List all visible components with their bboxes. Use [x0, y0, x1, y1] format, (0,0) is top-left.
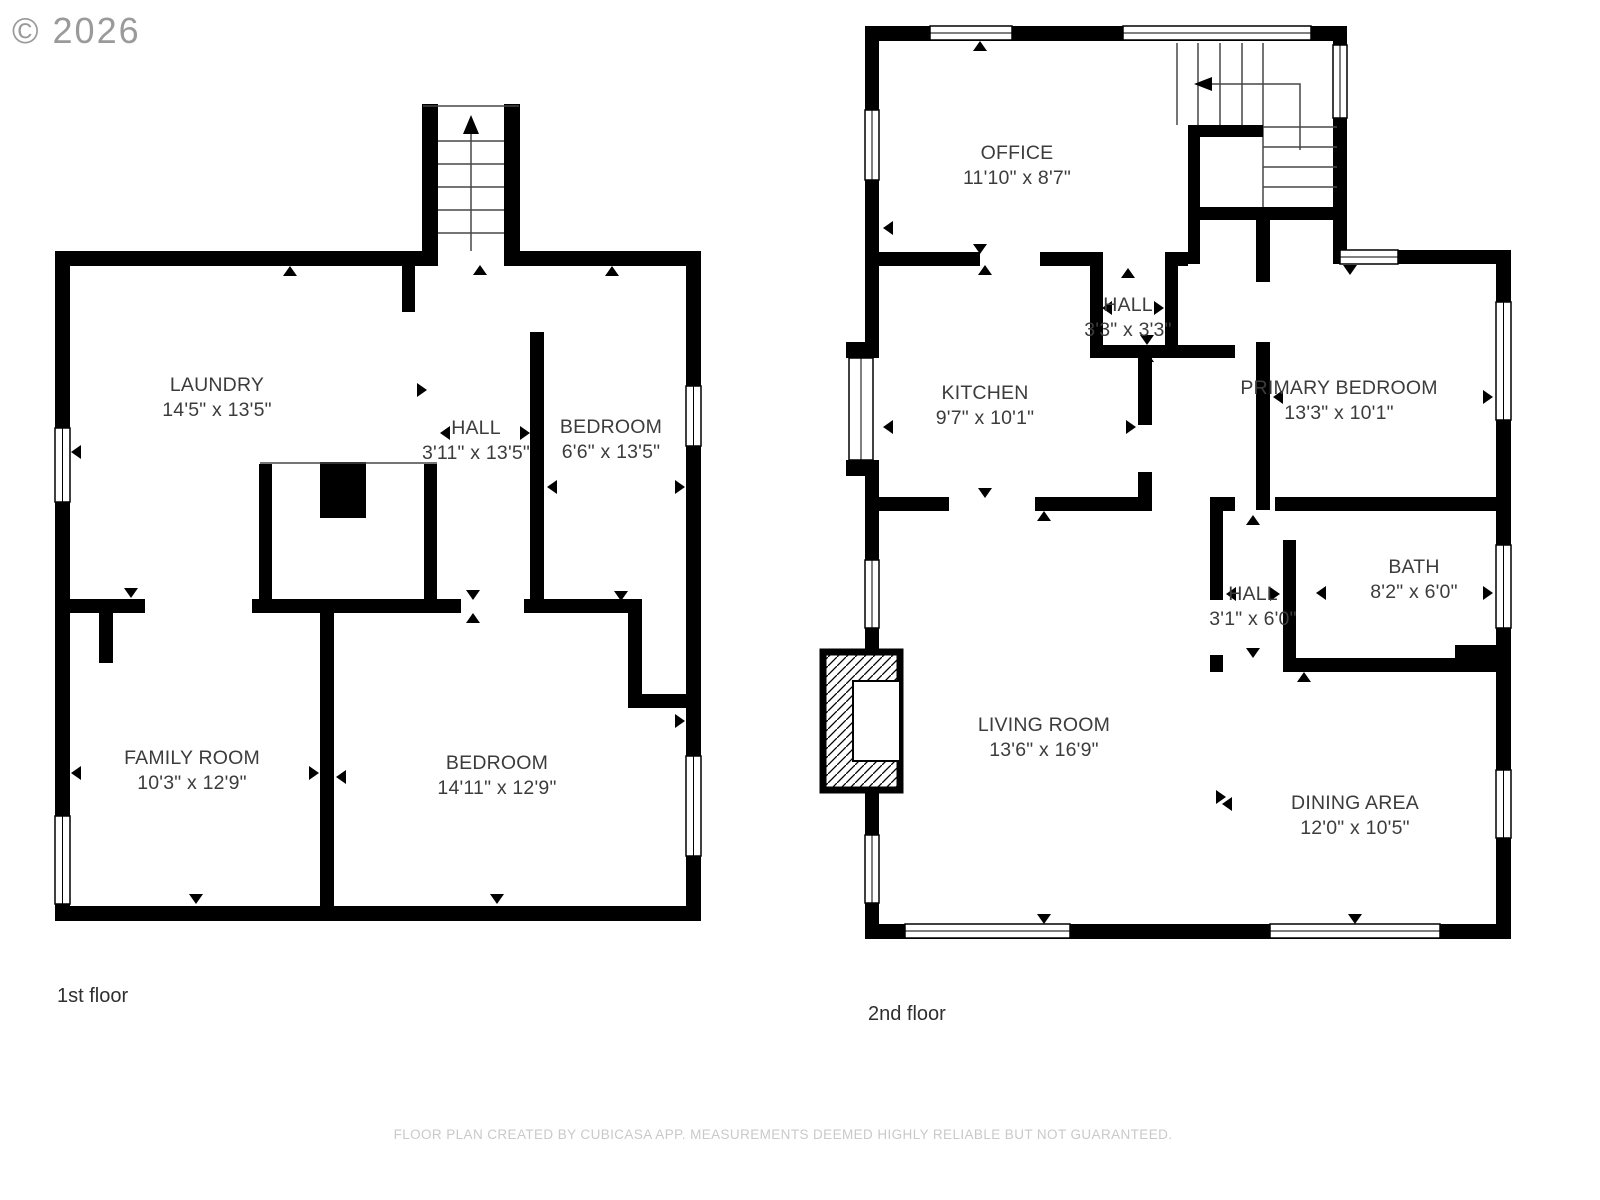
first-floor-arrows: [71, 265, 685, 904]
room-label-dining-area: DINING AREA 12'0" x 10'5": [1291, 791, 1419, 841]
room-dims: 3'11" x 13'5": [422, 441, 530, 466]
room-label-living-room: LIVING ROOM 13'6" x 16'9": [978, 713, 1110, 763]
second-floor-caption: 2nd floor: [868, 1003, 946, 1026]
first-floor-exterior-walls: [55, 251, 701, 921]
room-name: PRIMARY BEDROOM: [1240, 376, 1437, 401]
room-label-hall-2nd: HALL 3'1" x 6'0": [1209, 582, 1296, 632]
first-floor-interior-walls: [55, 266, 701, 921]
room-dims: 9'7" x 10'1": [936, 406, 1035, 431]
copyright-watermark: © 2026: [12, 10, 141, 52]
room-label-bedroom-upper: BEDROOM 6'6" x 13'5": [560, 415, 662, 465]
room-dims: 8'2" x 6'0": [1370, 580, 1457, 605]
room-name: KITCHEN: [936, 381, 1035, 406]
room-dims: 6'6" x 13'5": [560, 440, 662, 465]
room-dims: 3'1" x 6'0": [1209, 607, 1296, 632]
room-label-bath: BATH 8'2" x 6'0": [1370, 555, 1457, 605]
room-label-office: OFFICE 11'10" x 8'7": [963, 141, 1071, 191]
room-name: OFFICE: [963, 141, 1071, 166]
room-name: BEDROOM: [560, 415, 662, 440]
room-name: DINING AREA: [1291, 791, 1419, 816]
room-label-hall-small: HALL 3'3" x 3'3": [1084, 293, 1171, 343]
stairs-up-arrow: [463, 115, 479, 134]
first-floor-plan: [55, 104, 701, 921]
first-floor-stairs: [422, 104, 520, 266]
room-dims: 14'5" x 13'5": [162, 398, 272, 423]
room-label-family-room: FAMILY ROOM 10'3" x 12'9": [124, 746, 260, 796]
room-dims: 12'0" x 10'5": [1291, 816, 1419, 841]
room-dims: 3'3" x 3'3": [1084, 318, 1171, 343]
footer-disclaimer: FLOOR PLAN CREATED BY CUBICASA APP. MEAS…: [394, 1127, 1173, 1142]
room-name: LAUNDRY: [162, 373, 272, 398]
kitchen-bay-window: [846, 342, 879, 476]
room-name: HALL: [1084, 293, 1171, 318]
room-dims: 10'3" x 12'9": [124, 771, 260, 796]
room-label-hall-1st: HALL 3'11" x 13'5": [422, 416, 530, 466]
room-dims: 11'10" x 8'7": [963, 166, 1071, 191]
chimney-block: [320, 462, 366, 518]
room-dims: 14'11" x 12'9": [437, 776, 556, 801]
room-label-kitchen: KITCHEN 9'7" x 10'1": [936, 381, 1035, 431]
room-name: BEDROOM: [437, 751, 556, 776]
room-name: BATH: [1370, 555, 1457, 580]
room-name: LIVING ROOM: [978, 713, 1110, 738]
room-label-primary-bedroom: PRIMARY BEDROOM 13'3" x 10'1": [1240, 376, 1437, 426]
room-name: HALL: [1209, 582, 1296, 607]
first-floor-caption: 1st floor: [57, 985, 128, 1008]
room-label-bedroom-lower: BEDROOM 14'11" x 12'9": [437, 751, 556, 801]
room-dims: 13'3" x 10'1": [1240, 401, 1437, 426]
room-name: FAMILY ROOM: [124, 746, 260, 771]
stairs-down-arrow: [1194, 77, 1212, 91]
fireplace: [823, 652, 900, 790]
room-dims: 13'6" x 16'9": [978, 738, 1110, 763]
floor-plan-page: { "watermark": "© 2026", "floors": [ { "…: [0, 0, 1600, 1200]
room-label-laundry: LAUNDRY 14'5" x 13'5": [162, 373, 272, 423]
floor-plan-drawing: [0, 0, 1600, 1200]
room-name: HALL: [422, 416, 530, 441]
